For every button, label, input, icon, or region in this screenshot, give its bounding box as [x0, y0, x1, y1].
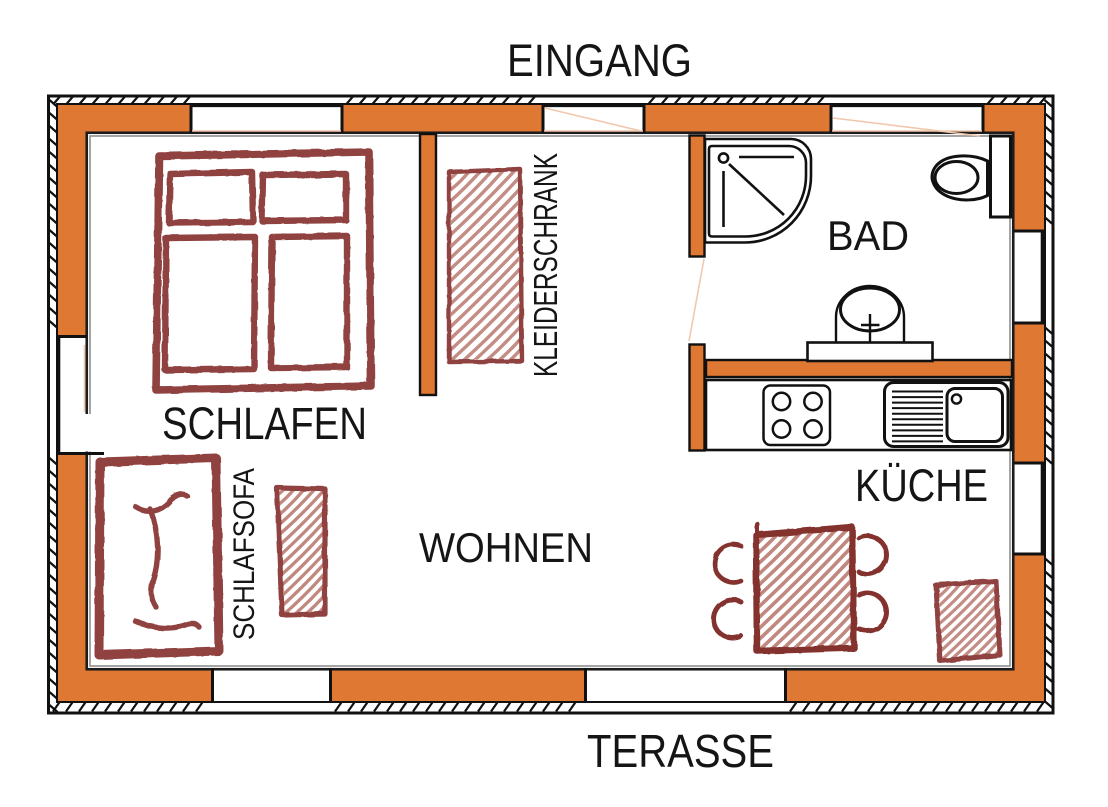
svg-text:BAD: BAD — [827, 212, 909, 259]
svg-text:SCHLAFEN: SCHLAFEN — [162, 398, 367, 449]
svg-text:WOHNEN: WOHNEN — [419, 524, 593, 571]
svg-text:TERASSE: TERASSE — [587, 725, 774, 777]
svg-text:KLEIDERSCHRANK: KLEIDERSCHRANK — [527, 153, 564, 377]
svg-text:KÜCHE: KÜCHE — [855, 460, 988, 511]
svg-text:SCHLAFSOFA: SCHLAFSOFA — [228, 468, 261, 640]
svg-text:EINGANG: EINGANG — [507, 35, 692, 86]
